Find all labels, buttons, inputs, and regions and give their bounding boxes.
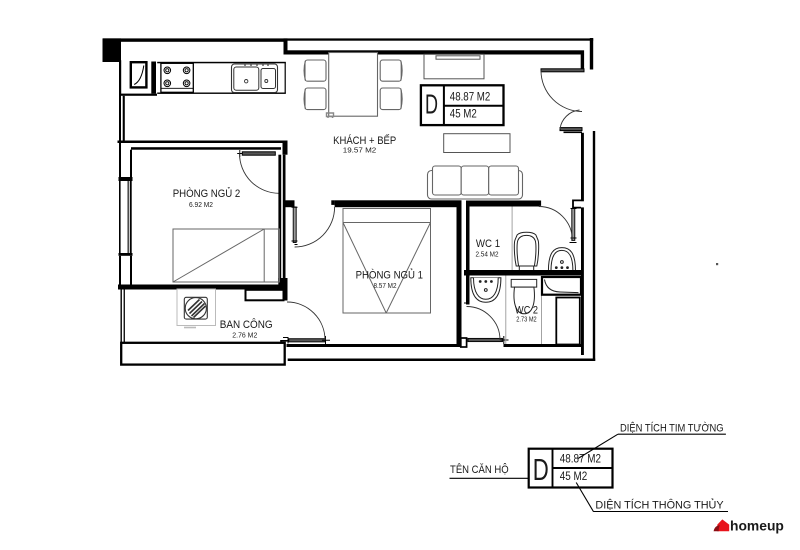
svg-text:TÊN CĂN HỘ: TÊN CĂN HỘ — [450, 463, 509, 476]
svg-text:48.87 M2: 48.87 M2 — [450, 90, 491, 103]
svg-text:45 M2: 45 M2 — [450, 108, 477, 121]
svg-text:48.87 M2: 48.87 M2 — [560, 453, 601, 466]
svg-text:DIỆN TÍCH TIM TƯỜNG: DIỆN TÍCH TIM TƯỜNG — [620, 421, 724, 434]
svg-text:45 M2: 45 M2 — [560, 470, 588, 483]
svg-text:19.57 M2: 19.57 M2 — [343, 145, 377, 154]
svg-text:D: D — [425, 88, 438, 119]
svg-text:homeup: homeup — [730, 519, 784, 534]
svg-text:8.57 M2: 8.57 M2 — [374, 281, 397, 290]
svg-text:BAN CÔNG: BAN CÔNG — [220, 318, 273, 331]
svg-text:PHÒNG NGỦ 2: PHÒNG NGỦ 2 — [173, 187, 241, 200]
svg-text:WC 1: WC 1 — [476, 238, 500, 250]
svg-text:2.73 M2: 2.73 M2 — [516, 314, 536, 323]
svg-text:2.76 M2: 2.76 M2 — [232, 330, 257, 339]
svg-text:PHÒNG NGỦ 1: PHÒNG NGỦ 1 — [356, 269, 423, 282]
svg-text:6.92 M2: 6.92 M2 — [189, 200, 213, 209]
svg-text:2.54 M2: 2.54 M2 — [476, 250, 499, 259]
svg-text:D: D — [533, 453, 549, 487]
svg-text:DIỆN TÍCH THÔNG THỦY: DIỆN TÍCH THÔNG THỦY — [595, 498, 724, 511]
